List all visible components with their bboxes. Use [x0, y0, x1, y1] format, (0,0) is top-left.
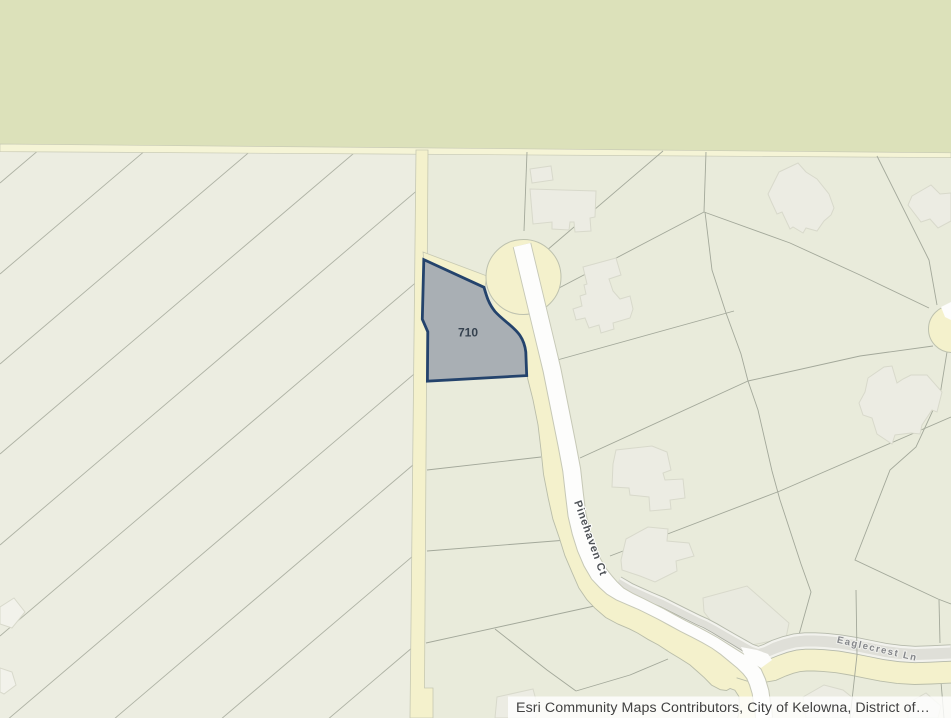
svg-text:Esri Community Maps Contributo: Esri Community Maps Contributors, City o…	[516, 700, 930, 716]
svg-text:710: 710	[458, 326, 478, 340]
